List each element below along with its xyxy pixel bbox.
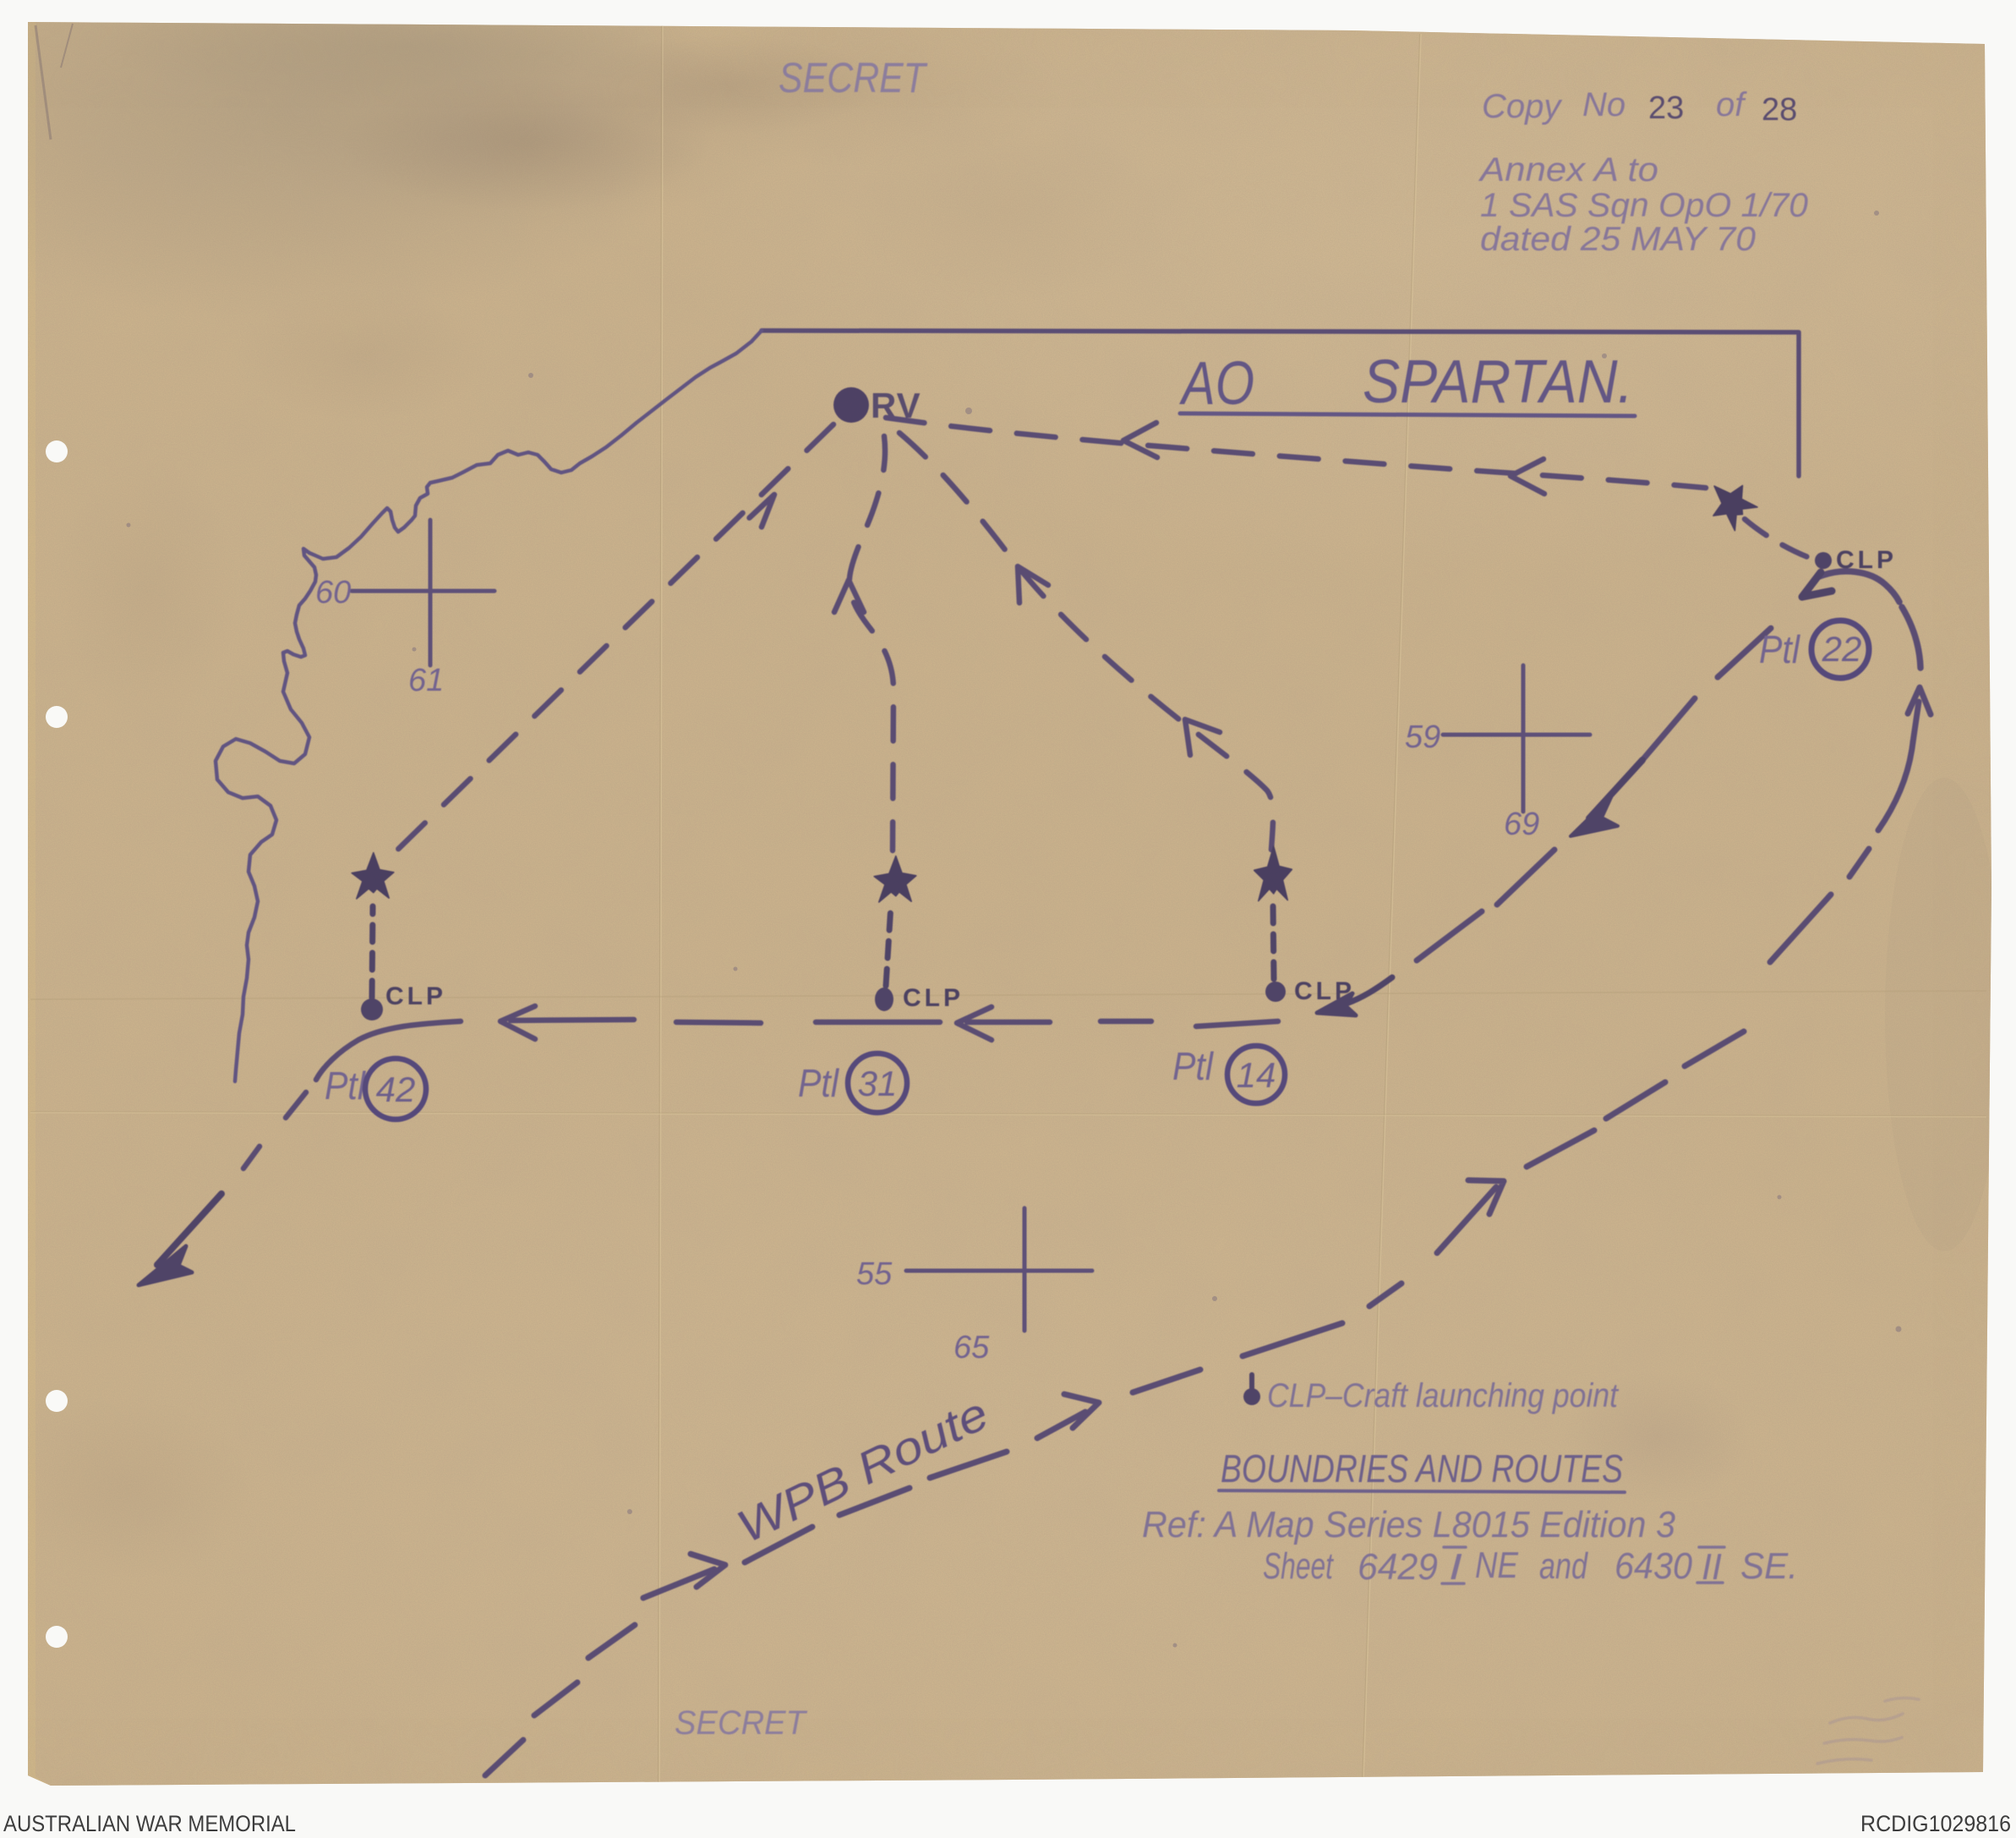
svg-text:Ptl: Ptl	[325, 1064, 367, 1108]
svg-text:SECRET: SECRET	[779, 54, 928, 101]
svg-text:SECRET: SECRET	[675, 1704, 807, 1742]
svg-text:CLP: CLP	[385, 982, 446, 1010]
svg-text:No: No	[1582, 86, 1625, 123]
svg-text:6429: 6429	[1358, 1546, 1438, 1588]
svg-text:CLP: CLP	[903, 984, 964, 1012]
svg-text:NE: NE	[1475, 1545, 1519, 1586]
svg-text:22: 22	[1822, 629, 1862, 669]
svg-text:and: and	[1539, 1545, 1588, 1587]
svg-text:Ref: A Map Series L8015 E: Ref: A Map Series L8015 Edition 3	[1142, 1504, 1675, 1545]
svg-text:6430: 6430	[1614, 1545, 1692, 1587]
svg-text:Ptl: Ptl	[1759, 627, 1801, 671]
svg-text:Ptl: Ptl	[798, 1061, 840, 1105]
svg-text:60: 60	[315, 575, 351, 610]
svg-text:55: 55	[856, 1256, 893, 1292]
svg-text:59: 59	[1405, 719, 1440, 755]
svg-text:AUSTRALIAN WAR MEMORIAL: AUSTRALIAN WAR MEMORIAL	[3, 1811, 296, 1836]
svg-text:69: 69	[1504, 807, 1539, 842]
svg-text:Sheet: Sheet	[1263, 1545, 1334, 1587]
svg-text:1 SAS Sqn OpO 1/70: 1 SAS Sqn OpO 1/70	[1480, 187, 1808, 224]
svg-text:I: I	[1449, 1546, 1462, 1588]
svg-text:BOUNDRIES AND ROUTES: BOUNDRIES AND ROUTES	[1221, 1447, 1623, 1491]
svg-text:dated 25 MAY 70: dated 25 MAY 70	[1480, 221, 1756, 258]
svg-text:SPARTAN.: SPARTAN.	[1363, 348, 1633, 416]
svg-text:61: 61	[408, 663, 444, 698]
svg-text:Annex A to: Annex A to	[1478, 151, 1658, 189]
svg-text:of: of	[1716, 86, 1747, 123]
svg-text:Copy: Copy	[1482, 88, 1563, 125]
svg-text:23: 23	[1648, 90, 1684, 126]
svg-text:SE.: SE.	[1740, 1545, 1798, 1587]
svg-text:RCDIG1029816: RCDIG1029816	[1860, 1811, 2011, 1836]
svg-text:65: 65	[953, 1330, 990, 1365]
svg-text:AO: AO	[1179, 350, 1254, 418]
svg-text:31: 31	[858, 1064, 898, 1103]
svg-text:28: 28	[1762, 92, 1797, 128]
svg-text:Ptl: Ptl	[1172, 1044, 1215, 1088]
svg-text:CLP–Craft launching point: CLP–Craft launching point	[1267, 1377, 1620, 1414]
svg-text:42: 42	[376, 1069, 416, 1109]
svg-text:14: 14	[1237, 1055, 1276, 1095]
